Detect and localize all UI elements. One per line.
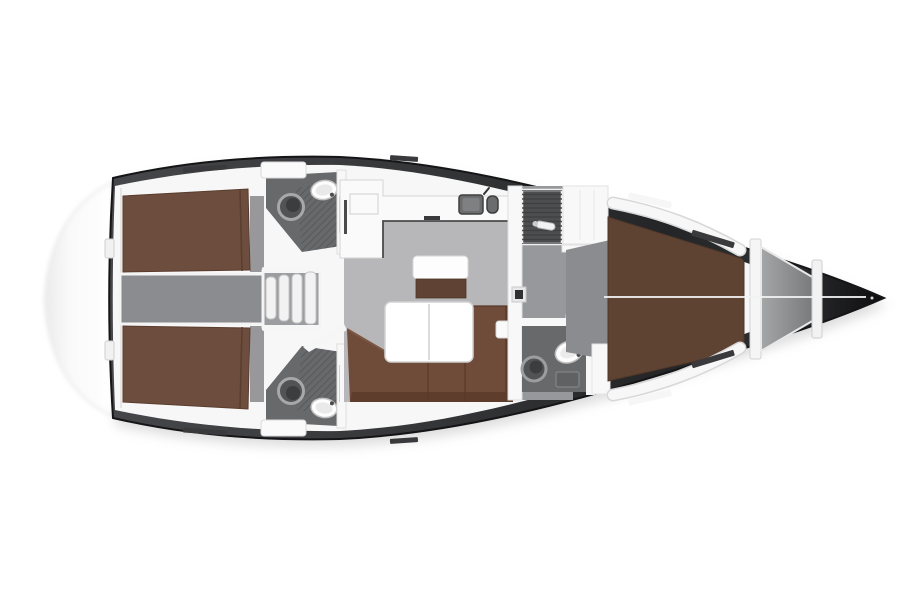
step-1 xyxy=(266,277,276,319)
yacht-floor-plan-svg xyxy=(0,0,900,600)
toilet-aft-port-lid xyxy=(286,198,300,212)
forward-bulkhead xyxy=(750,239,761,359)
wardrobe-port xyxy=(563,186,608,244)
floor-plan xyxy=(0,0,900,600)
berth-aft-port xyxy=(123,189,250,272)
head-starboard-cabinet xyxy=(261,420,306,436)
step-3 xyxy=(292,274,302,323)
nav-seat-cushion xyxy=(416,279,466,298)
forward-cabin-floor xyxy=(566,240,610,360)
step-4 xyxy=(305,272,316,324)
transom-notch-bottom xyxy=(105,341,114,360)
toilet-forward-lid xyxy=(530,361,543,374)
head-forward-wall-top xyxy=(513,318,575,326)
berth-aft-starboard xyxy=(123,326,250,409)
galley-stove-knobs xyxy=(424,216,440,220)
salon-table xyxy=(385,302,473,362)
cabin-floor-starboard xyxy=(250,326,264,402)
bow-fitting xyxy=(871,297,874,300)
nav-table-top xyxy=(413,256,468,279)
bulkhead-hatch xyxy=(515,290,523,299)
galley-sink-basin xyxy=(463,198,480,211)
engine-compartment xyxy=(120,274,263,324)
step-2 xyxy=(279,275,289,321)
galley-sink-round xyxy=(487,196,498,213)
sofa-back xyxy=(350,392,513,402)
aft-cabin-port xyxy=(123,189,264,272)
head-port-cabinet xyxy=(261,162,306,178)
galley-fridge-handle xyxy=(344,200,347,234)
shower-slats xyxy=(522,190,562,244)
anchor-locker-front-wall xyxy=(812,260,822,338)
aft-cabin-starboard xyxy=(123,326,264,409)
cabin-floor-port xyxy=(250,196,264,272)
head-forward-tray xyxy=(556,372,579,387)
swim-platform xyxy=(45,182,113,416)
forward-cabin-locker xyxy=(592,344,610,394)
toilet-aft-starboard-lid xyxy=(286,386,300,400)
transom-notch-top xyxy=(105,239,114,258)
companionway-steps xyxy=(262,267,320,331)
nav-seat xyxy=(413,256,468,298)
steps-cap-bottom xyxy=(262,325,320,331)
